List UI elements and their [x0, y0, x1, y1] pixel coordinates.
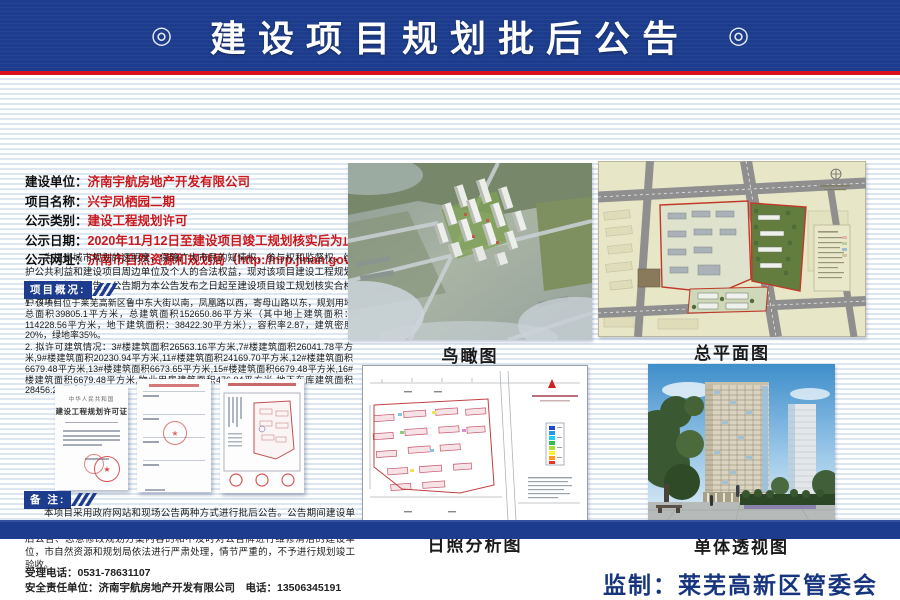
supervision-line: 监制：莱芜高新区管委会 — [603, 566, 878, 600]
footer-band — [0, 520, 900, 539]
info-value: 2020年11月12日至建设项目竣工规划核实后为止 — [88, 230, 355, 250]
permit-country-line: 中华人民共和国 — [55, 395, 128, 403]
info-row-project-name: 项目名称： 兴宇凤栖园二期 — [25, 191, 355, 211]
permit-siteplan-page — [220, 379, 304, 493]
perspective-image — [648, 364, 835, 529]
siteplan-caption: 总平面图 — [598, 339, 866, 364]
permit-page-title-line — [149, 384, 199, 387]
permit-drawing — [220, 389, 304, 489]
info-label: 项目名称： — [25, 191, 88, 211]
red-seal-icon: ★ — [163, 421, 187, 445]
info-row-category: 公示类别： 建设工程规划许可 — [25, 210, 355, 230]
header-banner: ◎ 建设项目规划批后公告 ◎ — [0, 0, 900, 71]
announcement-board: ◎ 建设项目规划批后公告 ◎ 建设单位： 济南宇航房地产开发有限公司 项目名称：… — [0, 0, 900, 539]
slash-stripes-icon — [75, 493, 93, 506]
permit-page-title-line — [228, 383, 296, 386]
permit-title: 建设工程规划许可证 — [55, 406, 128, 417]
ornament-circle-right: ◎ — [728, 24, 749, 48]
info-label: 公示日期： — [25, 230, 88, 250]
permit-documents: 中华人民共和国 建设工程规划许可证 ★ — [55, 379, 305, 493]
info-row-unit: 建设单位： 济南宇航房地产开发有限公司 — [25, 171, 355, 191]
siteplan-image — [598, 161, 866, 337]
remarks-heading: 备 注: — [24, 491, 71, 509]
info-label: 建设单位： — [25, 171, 88, 191]
info-row-date: 公示日期： 2020年11月12日至建设项目竣工规划核实后为止 — [25, 230, 355, 250]
sunshine-analysis-image — [362, 365, 588, 527]
red-seal-icon — [84, 454, 104, 474]
remarks-text: 本项目采用政府网站和现场公告两种方式进行批后公告。公告期间建设单位应保留公告牌清… — [25, 507, 355, 572]
permit-attachment-page: ★ — [137, 379, 211, 492]
ornament-circle-left: ◎ — [151, 24, 172, 48]
permit-certificate-cover: 中华人民共和国 建设工程规划许可证 ★ — [55, 386, 128, 490]
section-overview-header: 项目概况: — [24, 282, 114, 297]
section-remarks-header: 备 注: — [24, 492, 93, 507]
info-value: 建设工程规划许可 — [88, 210, 188, 230]
overview-item-1: 1. 该项目位于莱芜高新区鲁中东大街以南，凤凰路以西，寄母山路以东，规划用地总面… — [25, 298, 353, 341]
info-value: 兴宇凤栖园二期 — [88, 191, 176, 211]
safety-unit-line: 安全责任单位：济南宇航房地产开发有限公司 电话：13506345191 — [25, 580, 341, 595]
info-value: 济南宇航房地产开发有限公司 — [88, 171, 251, 191]
permit-number-line — [65, 422, 118, 423]
aerial-view-caption: 鸟瞰图 — [348, 342, 592, 367]
page-title: 建设项目规划批后公告 — [210, 10, 690, 62]
overview-heading: 项目概况: — [24, 281, 92, 299]
acceptance-phone: 受理电话：0531-78631107 — [25, 565, 151, 580]
content-area: 建设单位： 济南宇航房地产开发有限公司 项目名称： 兴宇凤栖园二期 公示类别： … — [0, 75, 900, 520]
slash-stripes-icon — [96, 283, 114, 296]
aerial-view-image — [348, 163, 592, 340]
info-label: 公示类别： — [25, 210, 88, 230]
